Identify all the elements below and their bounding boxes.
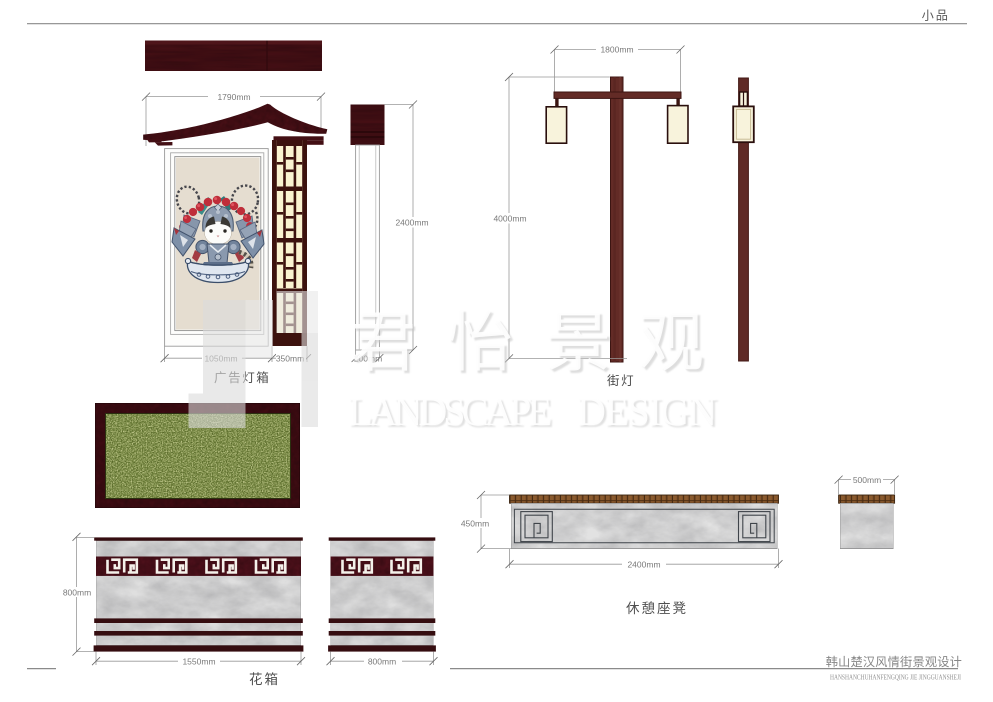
svg-text:350mm: 350mm [276, 354, 304, 364]
svg-text:君: 君 [350, 307, 416, 380]
svg-text:800mm: 800mm [63, 588, 91, 598]
svg-text:2400mm: 2400mm [627, 559, 660, 569]
svg-text:450mm: 450mm [461, 519, 489, 529]
svg-text:景: 景 [545, 307, 611, 380]
svg-text:1800mm: 1800mm [600, 45, 633, 55]
svg-text:DESIGN: DESIGN [577, 389, 717, 434]
svg-text:花箱: 花箱 [249, 672, 280, 687]
svg-text:4000mm: 4000mm [493, 214, 526, 224]
svg-text:韩山楚汉风情街景观设计: 韩山楚汉风情街景观设计 [826, 654, 962, 669]
svg-text:500mm: 500mm [853, 475, 881, 485]
svg-text:观: 观 [638, 307, 704, 380]
svg-text:800mm: 800mm [368, 656, 396, 666]
svg-text:2400mm: 2400mm [395, 218, 428, 228]
svg-text:HANSHANCHUHANFENGQING JIE JING: HANSHANCHUHANFENGQING JIE JINGGUANSHEJI [830, 673, 961, 682]
svg-text:怡: 怡 [447, 307, 513, 380]
svg-text:休憩座凳: 休憩座凳 [626, 600, 688, 616]
svg-text:LANDSCAPE: LANDSCAPE [348, 389, 552, 434]
svg-text:1790mm: 1790mm [217, 92, 250, 102]
svg-text:小品: 小品 [922, 9, 950, 23]
svg-text:1550mm: 1550mm [182, 656, 215, 666]
